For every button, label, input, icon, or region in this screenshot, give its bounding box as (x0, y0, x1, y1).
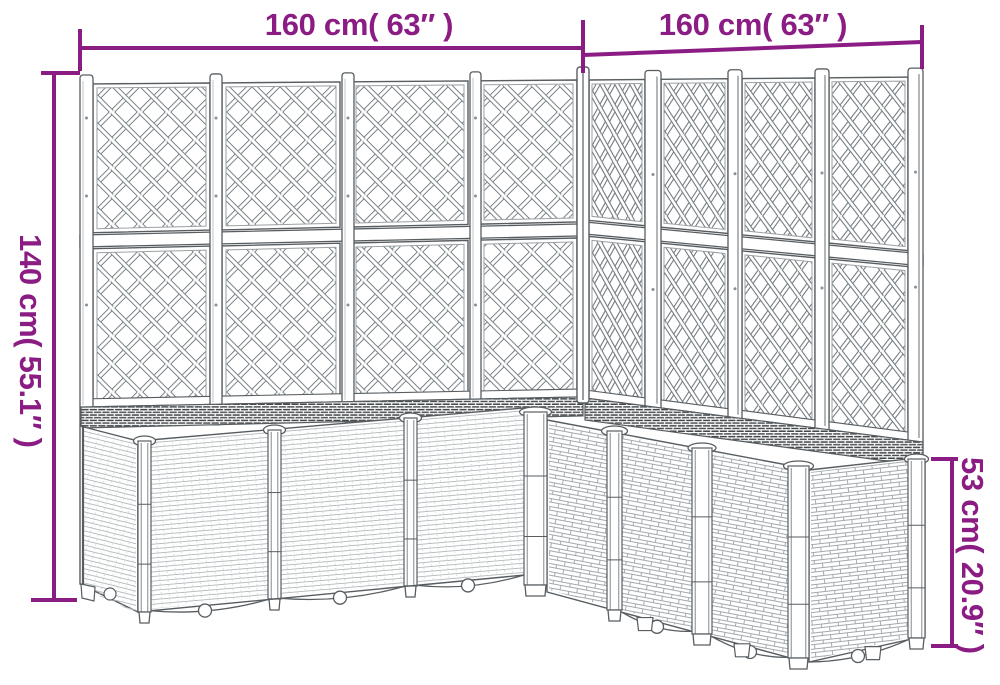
svg-text:53 cm( 20.9″ ): 53 cm( 20.9″ ) (955, 457, 990, 654)
svg-text:160 cm( 63″ ): 160 cm( 63″ ) (265, 7, 453, 42)
svg-text:140 cm( 55.1″ ): 140 cm( 55.1″ ) (13, 234, 48, 448)
svg-text:160 cm( 63″ ): 160 cm( 63″ ) (659, 7, 847, 42)
